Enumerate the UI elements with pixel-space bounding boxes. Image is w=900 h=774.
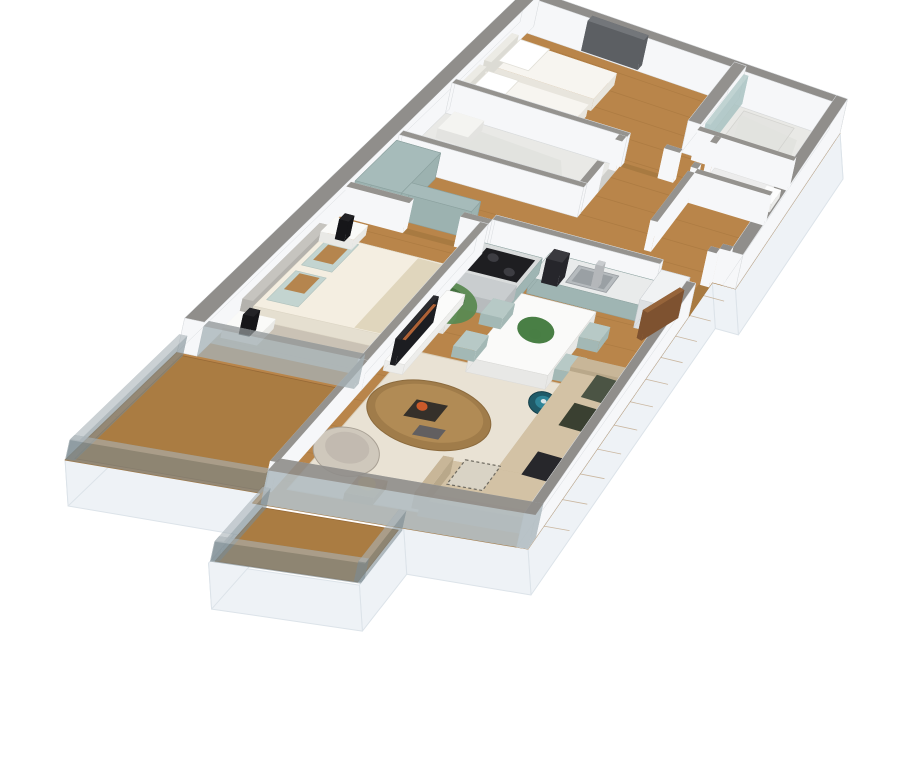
apartment-3d-floor-plan xyxy=(0,0,900,774)
floor-plan-render xyxy=(0,0,900,774)
